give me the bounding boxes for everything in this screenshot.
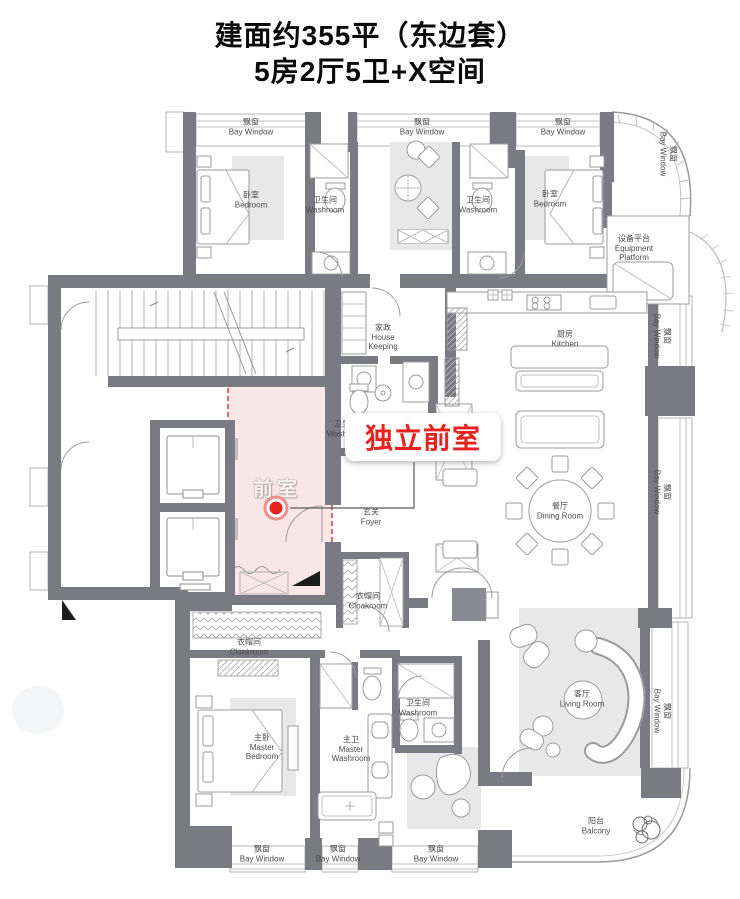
room-label-foyer: 玄关Foyer [361,508,381,527]
front-room-label: 前室 [253,473,301,502]
room-label-dining: 餐厅Dining Room [537,502,583,521]
bay-window-label-right-dining: 飘窗Bay Window [653,470,672,514]
bay-window-label-right-kitchen: 飘窗Bay Window [653,314,672,358]
room-label-kitchen: 厨房Kitchen [552,330,579,349]
furniture-dining [443,456,614,621]
room-label-balcony: 阳台Balcony [582,817,610,836]
room-label-living: 客厅Living Room [560,690,604,709]
room-label-master-washroom: 主卫MasterWashroom [332,735,370,764]
highlight-dot [267,499,286,518]
room-label-cloakroom-small: 衣帽间Cloakroom [349,592,388,611]
page-subtitle: 5房2厅5卫+X空间 [0,50,740,90]
bay-window-label-top-middle: 飘窗Bay Window [400,118,444,137]
page-title: 建面约355平（东边套） [0,14,740,54]
room-label-cloakroom-master: 衣帽间Cloakroom [230,638,269,657]
room-label-bedroom-top-right: 卧室Bedroom [534,190,566,209]
room-label-washroom-bottom: 卫生间Washroom [399,699,437,718]
bay-window-label-bottom-3: 飘窗Bay Window [414,845,458,864]
bay-window-label-top-right: 飘窗Bay Window [541,118,585,137]
elevators [167,436,219,590]
callout-independent-front-room: 独立前室 [345,413,501,461]
bay-window-label-top-left: 飘窗Bay Window [229,118,273,137]
floor-plan-page: 建面约355平（东边套） 5房2厅5卫+X空间 飘窗Bay Window 飘窗B… [0,0,740,899]
room-label-washroom-top-left: 卫生间Washroom [306,196,344,215]
stairs [96,290,324,376]
bay-window-label-right-living: 飘窗Bay Window [653,689,672,733]
bay-window-label-right-top: 飘窗Bay Window [659,132,678,176]
room-label-washroom-top-right: 卫生间Washroom [459,196,497,215]
room-label-equipment-platform: 设备平台EquipmentPlatform [615,234,653,263]
room-label-housekeeping: 家政HouseKeeping [368,323,397,352]
bay-window-label-bottom-1: 飘窗Bay Window [240,845,284,864]
room-label-master-bedroom: 主卧MasterBedroom [246,733,278,762]
room-label-bedroom-top-left: 卧室Bedroom [235,191,267,210]
bay-window-label-bottom-2: 飘窗Bay Window [316,845,360,864]
